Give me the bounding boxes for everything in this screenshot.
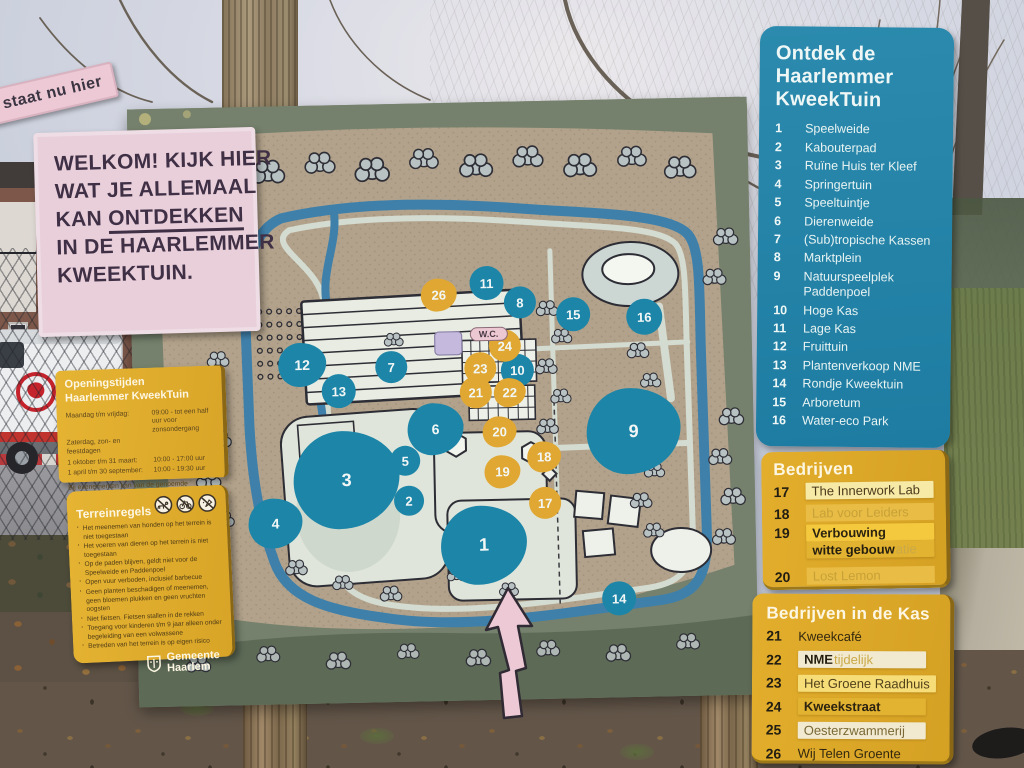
legend-item: 13Plantenverkoop NME <box>773 358 941 375</box>
legend-item-number: 8 <box>774 251 804 267</box>
map-marker-16: 16 <box>626 298 663 335</box>
sticker-label: Het Groene Raadhuis <box>798 674 936 692</box>
legend-item: 5Speeltuintje <box>774 195 942 212</box>
legend-item-number: 1 <box>775 122 805 138</box>
sticker-label: Kweekstraat <box>798 698 926 716</box>
map-marker-4: 4 <box>248 498 303 549</box>
legend-item-label: Marktplein <box>804 251 862 267</box>
map-marker-9: 9 <box>586 387 682 475</box>
map-marker-22: 22 <box>494 378 527 408</box>
sticker-label: Verbouwing <box>806 523 934 542</box>
business-item-label: NMEtijdelijk <box>798 651 926 669</box>
opening-row-label: 1 april t/m 30 september: <box>68 467 150 479</box>
opening-title: Openingstijden Haarlemmer KweekTuin <box>64 374 213 407</box>
legend-item-label: Dierenweide <box>804 214 874 230</box>
map-marker-26: 26 <box>420 278 457 312</box>
legend-item: 11Lage Kas <box>773 321 941 338</box>
map-marker-6: 6 <box>407 403 464 456</box>
business-item-number: 26 <box>766 745 798 761</box>
sticker-label: Oesterzwammerij <box>798 721 926 739</box>
map-marker-13: 13 <box>321 374 356 409</box>
business-item-number: 20 <box>775 568 807 584</box>
legend-item-number: 16 <box>772 413 802 429</box>
sticker-label: Lab voor Leiders <box>806 503 934 522</box>
legend-item-label: Speelweide <box>805 122 870 138</box>
opening-row-label: Zaterdag, zon- en feestdagen <box>67 437 150 458</box>
legend-item-number: 2 <box>775 140 805 156</box>
legend-item-number: 5 <box>774 195 804 211</box>
opening-hours-rows: Maandag t/m vrijdag:09:00 - tot een half… <box>66 407 216 478</box>
business-item-label: The Innerwork Lab <box>805 481 933 500</box>
business-item-label: Lost Lemon <box>807 566 935 585</box>
business-item: 23Het Groene Raadhuis <box>766 672 942 695</box>
rules-title: Terreinregels <box>76 504 152 521</box>
legend-item-label: Arboretum <box>802 395 861 411</box>
business-item-number: 19 <box>774 525 806 541</box>
legend-item-number: 10 <box>773 303 803 319</box>
legend-item-label: Springertuin <box>804 177 872 193</box>
welcome-line: KWEEKTUIN. <box>57 257 246 290</box>
rules-sign: Terreinregels <box>66 484 236 663</box>
map-marker-19: 19 <box>484 455 521 489</box>
legend-item: 10Hoge Kas <box>773 303 941 320</box>
legend-list: 1Speelweide2Kabouterpad3Ruïne Huis ter K… <box>772 122 943 431</box>
opening-row-label: Maandag t/m vrijdag: <box>66 409 149 438</box>
you-are-here-arrow <box>430 578 590 728</box>
business-item: 19Verbouwingwitte gebouwatie <box>774 523 939 565</box>
hedge-right <box>946 198 1024 290</box>
legend-title: Ontdek de Haarlemmer KweekTuin <box>775 42 944 112</box>
business-item-number: 21 <box>766 628 798 644</box>
opening-hours-sign: Openingstijden Haarlemmer KweekTuin Maan… <box>55 365 229 483</box>
legend-item-label: Fruittuin <box>803 340 848 356</box>
wc-label: W.C. <box>470 327 508 342</box>
business-item-label: Het Groene Raadhuis <box>798 674 936 692</box>
welcome-sign: WELKOM! KIJK HIERWAT JE ALLEMAALKAN ONTD… <box>33 127 261 337</box>
business-item: 17The Innerwork Lab <box>773 479 937 502</box>
legend-item-number: 12 <box>773 340 803 356</box>
business-item-label: Kweekstraat <box>798 698 926 716</box>
business-item-number: 24 <box>766 698 798 714</box>
business-item-number: 18 <box>774 505 806 521</box>
legend-item-label: Ruïne Huis ter Kleef <box>805 159 917 175</box>
no-cycling-icon <box>175 494 195 514</box>
legend-item-label: Speeltuintje <box>804 196 869 212</box>
business-item: 20Lost Lemon <box>775 564 939 587</box>
bedrijven-list: 17The Innerwork Lab18Lab voor Leiders19V… <box>773 479 938 587</box>
legend-item: 15Arboretum <box>772 395 940 412</box>
legend-item: 14Rondje Kweektuin <box>772 376 940 393</box>
photo-scene: 1234567891011121314151617181920212223242… <box>0 0 1024 768</box>
grass-tuft <box>360 728 394 744</box>
no-dogs-icon <box>153 495 173 515</box>
no-feeding-icon <box>197 493 217 513</box>
legend-item: 9Natuurspeelplek Paddenpoel <box>773 269 941 301</box>
map-marker-5: 5 <box>390 445 421 476</box>
business-item: 24Kweekstraat <box>766 695 942 718</box>
business-item-number: 25 <box>766 722 798 738</box>
kas-list: 21Kweekcafé22NMEtijdelijk23Het Groene Ra… <box>766 625 943 766</box>
sticker-label-line2: witte gebouwatie <box>806 540 934 559</box>
business-item-number: 23 <box>766 675 798 691</box>
legend-item-number: 13 <box>773 358 803 374</box>
grass <box>944 288 1024 570</box>
map-marker-7: 7 <box>375 351 408 384</box>
sticker-label: The Innerwork Lab <box>805 481 933 500</box>
map-marker-12: 12 <box>278 342 327 387</box>
legend-item-number: 9 <box>773 269 803 300</box>
legend-item: 3Ruïne Huis ter Kleef <box>775 158 943 175</box>
opening-row-value <box>152 435 215 455</box>
legend-item-number: 4 <box>774 177 804 193</box>
bedrijven-panel: Bedrijven 17The Innerwork Lab18Lab voor … <box>761 450 951 591</box>
rules-list: Het meenemen van honden op het terrein i… <box>77 519 224 652</box>
legend-item-label: Hoge Kas <box>803 303 858 319</box>
ghost-text: atie <box>896 541 917 556</box>
business-item: 22NMEtijdelijk <box>766 648 942 671</box>
business-item: 21Kweekcafé <box>766 625 942 648</box>
kas-title: Bedrijven in de Kas <box>766 604 942 625</box>
legend-item: 8Marktplein <box>774 251 942 268</box>
map-marker-17: 17 <box>529 487 562 520</box>
prohibition-icons <box>153 493 217 515</box>
legend-item-label: Natuurspeelplek Paddenpoel <box>803 269 941 301</box>
map-marker-11: 11 <box>469 266 504 301</box>
map-marker-15: 15 <box>556 297 591 332</box>
legend-item-label: Lage Kas <box>803 321 856 337</box>
legend-item-number: 11 <box>773 321 803 337</box>
legend-item-label: Water-eco Park <box>802 414 889 430</box>
legend-item-number: 14 <box>772 376 802 392</box>
sticker-label: NMEtijdelijk <box>798 651 926 669</box>
legend-item: 6Dierenweide <box>774 214 942 231</box>
ghost-text: tijdelijk <box>834 652 873 667</box>
legend-panel: Ontdek de Haarlemmer KweekTuin 1Speelwei… <box>756 26 954 448</box>
opening-row-value: 10:00 - 17:00 uur <box>153 454 215 465</box>
map-marker-2: 2 <box>394 485 425 516</box>
legend-item-label: Rondje Kweektuin <box>802 377 903 393</box>
legend-item-number: 6 <box>774 214 804 230</box>
legend-item-label: Kabouterpad <box>805 140 877 156</box>
map-marker-8: 8 <box>504 286 537 319</box>
haarlem-shield-icon <box>145 655 162 674</box>
map-marker-3: 3 <box>293 430 401 530</box>
legend-item: 2Kabouterpad <box>775 140 943 157</box>
bedrijven-title: Bedrijven <box>773 458 937 480</box>
legend-item: 16Water-eco Park <box>772 413 940 430</box>
legend-item: 12Fruittuin <box>773 340 941 357</box>
legend-item: 4Springertuin <box>774 177 942 194</box>
business-item: 18Lab voor Leiders <box>774 501 938 524</box>
welcome-line: IN DE HAARLEMMER <box>56 229 245 262</box>
legend-item-number: 15 <box>772 395 802 411</box>
grass-tuft <box>620 744 654 760</box>
business-item-label: Lab voor Leiders <box>806 503 934 522</box>
arrow-icon <box>486 588 532 718</box>
business-item-label: Oesterzwammerij <box>798 721 926 739</box>
business-item: 26Wij Telen Groente <box>766 742 942 765</box>
business-item-label: Wij Telen Groente <box>798 746 901 762</box>
map-marker-1: 1 <box>440 505 528 586</box>
legend-item-label: (Sub)tropische Kassen <box>804 232 931 249</box>
legend-item-number: 3 <box>775 158 805 174</box>
map-marker-23: 23 <box>464 352 497 385</box>
legend-item: 1Speelweide <box>775 122 943 139</box>
business-item-label: Kweekcafé <box>798 628 862 643</box>
welcome-text: WELKOM! KIJK HIERWAT JE ALLEMAALKAN ONTD… <box>54 145 246 290</box>
map-marker-14: 14 <box>602 581 637 616</box>
sticker-label: Lost Lemon <box>807 566 935 585</box>
kas-panel: Bedrijven in de Kas 21Kweekcafé22NMEtijd… <box>752 593 955 764</box>
map-marker-18: 18 <box>527 441 562 473</box>
legend-item: 7(Sub)tropische Kassen <box>774 232 942 249</box>
business-item-number: 22 <box>766 651 798 667</box>
opening-row-value: 09:00 - tot een half uur voor zonsonderg… <box>151 407 214 436</box>
legend-item-number: 7 <box>774 232 804 248</box>
opening-row-value: 10:00 - 19:30 uur <box>153 464 215 475</box>
business-item-label: Verbouwingwitte gebouwatie <box>806 523 934 559</box>
opening-row: Maandag t/m vrijdag:09:00 - tot een half… <box>66 407 215 439</box>
legend-item-label: Plantenverkoop NME <box>803 358 921 374</box>
business-item-number: 17 <box>773 483 805 499</box>
map-marker-20: 20 <box>482 416 517 448</box>
business-item: 25Oesterzwammerij <box>766 719 942 742</box>
